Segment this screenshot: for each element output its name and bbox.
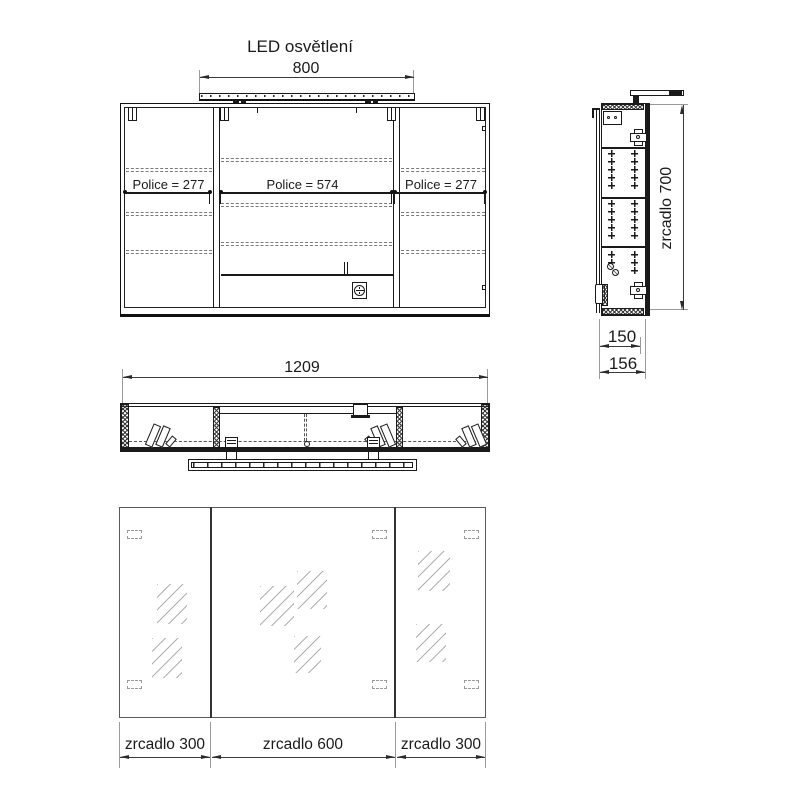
shelf-pin-icon: [608, 216, 615, 223]
dim-arrow: [212, 755, 221, 759]
shelf-pin-icon: [631, 224, 638, 231]
dim-arrow: [397, 755, 406, 759]
cabinet-inner-outline: [124, 107, 486, 308]
shelf-pin-icon: [631, 182, 638, 189]
shelf-pin-icon: [631, 158, 638, 165]
fixed-shelf-line: [221, 274, 393, 276]
door-divider: [213, 108, 220, 308]
shelf-pin-icon: [631, 208, 638, 215]
shelf-pin-icon: [631, 150, 638, 157]
shelf-pin-icon: [631, 251, 638, 258]
reflection-mark: [416, 624, 446, 662]
shelf-dim-line: [221, 192, 392, 194]
wall-clip: [592, 108, 594, 118]
shelf-dashed-line: [126, 212, 212, 216]
shelf-pin-icon: [608, 166, 615, 173]
bracket-hatch: [602, 284, 608, 306]
shelf-width-label-right: Police = 277: [397, 178, 485, 193]
dim-arrow: [479, 375, 488, 379]
led-mount-line: [369, 443, 378, 444]
led-driver-box: [603, 111, 622, 125]
hinge-marker: [464, 530, 479, 539]
shelf-pin-icon: [631, 216, 638, 223]
socket-slot: [356, 290, 364, 291]
led-strip-dots: [201, 95, 412, 97]
led-width-value: 800: [266, 60, 346, 78]
reflection-mark: [157, 584, 187, 624]
shelf-dim-tick: [394, 194, 395, 204]
dim-extension-line: [640, 337, 641, 354]
shelf-pin-icon: [608, 158, 615, 165]
door-hinge-icon: [457, 423, 483, 449]
door-divider: [393, 108, 400, 308]
dim-line: [200, 77, 414, 78]
overall-width-label: 1209: [262, 359, 342, 377]
dim-line: [120, 757, 210, 758]
shelf-dim-tick: [209, 194, 210, 204]
shelf-width-label-left: Police = 277: [126, 178, 211, 193]
door-hinge-tab: [387, 107, 396, 121]
dim-arrow: [123, 375, 132, 379]
led-bar-ticks: [193, 463, 411, 467]
hinge-marker: [127, 680, 142, 689]
hinge-marker: [464, 680, 479, 689]
hinge-plate-hole: [636, 135, 640, 139]
shelf-pin-icon: [608, 251, 615, 258]
reflection-mark: [260, 586, 294, 626]
dim-line: [212, 757, 395, 758]
hinge-marker: [372, 680, 387, 689]
dim-arrow: [476, 755, 485, 759]
shelf-pin-icon: [608, 232, 615, 239]
dim-line: [123, 377, 488, 378]
dim-line: [397, 757, 485, 758]
dim-arrow: [636, 370, 645, 374]
hanging-bracket-base: [351, 415, 370, 418]
shelf-line: [602, 197, 645, 199]
shelf-pin-icon: [608, 150, 615, 157]
hinge-marker: [127, 530, 142, 539]
support-stub: [344, 262, 348, 275]
led-mount-line: [369, 440, 378, 441]
dim-arrow: [631, 344, 640, 348]
dim-arrow: [120, 755, 129, 759]
dim-arrow: [201, 755, 210, 759]
shelf-pin-icon: [608, 224, 615, 231]
mirror-joint-line: [210, 507, 212, 718]
dim-extension-line: [485, 722, 486, 768]
shelf-line: [602, 246, 645, 248]
shelf-dashed-line: [126, 168, 212, 172]
shelf-pin-icon: [608, 182, 615, 189]
shelf-pin-icon: [631, 166, 638, 173]
dim-arrow: [600, 370, 609, 374]
led-mount-stem: [236, 448, 237, 459]
led-mount-line: [227, 440, 236, 441]
light-arm-head: [669, 90, 682, 96]
hinge-plate-hole: [636, 288, 640, 292]
height-dim-line: [683, 105, 684, 310]
mirror-front-line: [120, 447, 490, 452]
mirror-width-label-left: zrcadlo 300: [120, 736, 210, 754]
shelf-dashed-line: [221, 203, 392, 207]
dim-extension-line: [395, 722, 396, 768]
shelf-dashed-line: [126, 250, 212, 254]
hinge-tab-line: [391, 108, 392, 120]
hinge-tab-line: [480, 108, 481, 120]
led-mount-stem: [368, 448, 369, 459]
driver-screw: [607, 116, 610, 119]
shelf-dashed-line: [401, 250, 485, 254]
led-mount-stem: [226, 448, 227, 459]
dim-arrow: [386, 755, 395, 759]
driver-screw: [614, 116, 617, 119]
led-mount-line: [227, 443, 236, 444]
mirror-height-label: zrcadlo 700: [658, 158, 676, 258]
inner-top-line: [121, 406, 489, 407]
hinge-tab-line: [132, 108, 133, 120]
technical-drawing-canvas: LED osvětlení 800 Police = 277: [0, 0, 800, 800]
shelf-dashed-line: [221, 242, 392, 246]
dim-arrow: [600, 344, 609, 348]
dim-arrow: [680, 301, 684, 310]
shelf-dashed-line: [401, 168, 485, 172]
shelf-dim-tick: [220, 194, 221, 204]
mirror-width-label-right: zrcadlo 300: [397, 736, 485, 754]
shelf-pin-icon: [631, 174, 638, 181]
bottom-panel-hatch: [602, 308, 644, 315]
shelf-line: [602, 147, 645, 149]
shelf-pin-icon: [631, 232, 638, 239]
shelf-pin-icon: [608, 200, 615, 207]
shelf-pin-icon: [608, 208, 615, 215]
shelf-pin-icon: [631, 259, 638, 266]
reflection-mark: [152, 638, 182, 678]
inner-back-line: [220, 413, 396, 414]
dim-arrow: [680, 105, 684, 114]
shelf-dim-tick: [124, 194, 125, 204]
cable-end: [304, 441, 310, 447]
socket-prong: [359, 292, 360, 294]
led-strip-label: LED osvětlení: [225, 37, 375, 57]
dim-extension-line: [210, 722, 211, 768]
led-mount-stem: [378, 448, 379, 459]
reflection-mark: [418, 551, 450, 591]
hinge-tab-line: [224, 108, 225, 120]
shelf-dim-tick: [391, 194, 392, 204]
shelf-width-label-center: Police = 574: [255, 178, 350, 193]
side-wall-hatch: [121, 404, 129, 448]
dim-extension-line: [645, 319, 646, 379]
cable-stem: [304, 414, 307, 441]
shelf-dim-tick: [484, 194, 485, 204]
shelf-dashed-line: [221, 158, 392, 162]
door-catch: [482, 126, 486, 131]
door-hinge-tab: [220, 107, 229, 121]
dim-arrow: [200, 75, 209, 79]
back-rail: [596, 108, 600, 313]
shelf-pin-icon: [631, 200, 638, 207]
door-hinge-tab: [128, 107, 137, 121]
door-catch: [482, 285, 486, 290]
panel-seam-tick: [356, 108, 357, 113]
reflection-mark: [294, 636, 321, 673]
door-hinge-icon: [149, 423, 175, 449]
shelf-dim-line: [125, 192, 211, 194]
door-hinge-tab: [476, 107, 485, 121]
hinge-marker: [372, 530, 387, 539]
reflection-mark: [297, 571, 327, 609]
mirror-width-label-center: zrcadlo 600: [244, 736, 362, 754]
top-panel-hatch: [602, 104, 644, 110]
mirror-joint-line: [394, 507, 396, 718]
shelf-pin-icon: [631, 267, 638, 274]
shelf-dashed-line: [401, 212, 485, 216]
dim-arrow: [405, 75, 414, 79]
panel-seam-tick: [257, 108, 258, 113]
shelf-dim-line: [395, 192, 485, 194]
shelf-pin-icon: [608, 174, 615, 181]
push-catch-icon: [612, 269, 619, 276]
socket-prong: [359, 287, 360, 289]
